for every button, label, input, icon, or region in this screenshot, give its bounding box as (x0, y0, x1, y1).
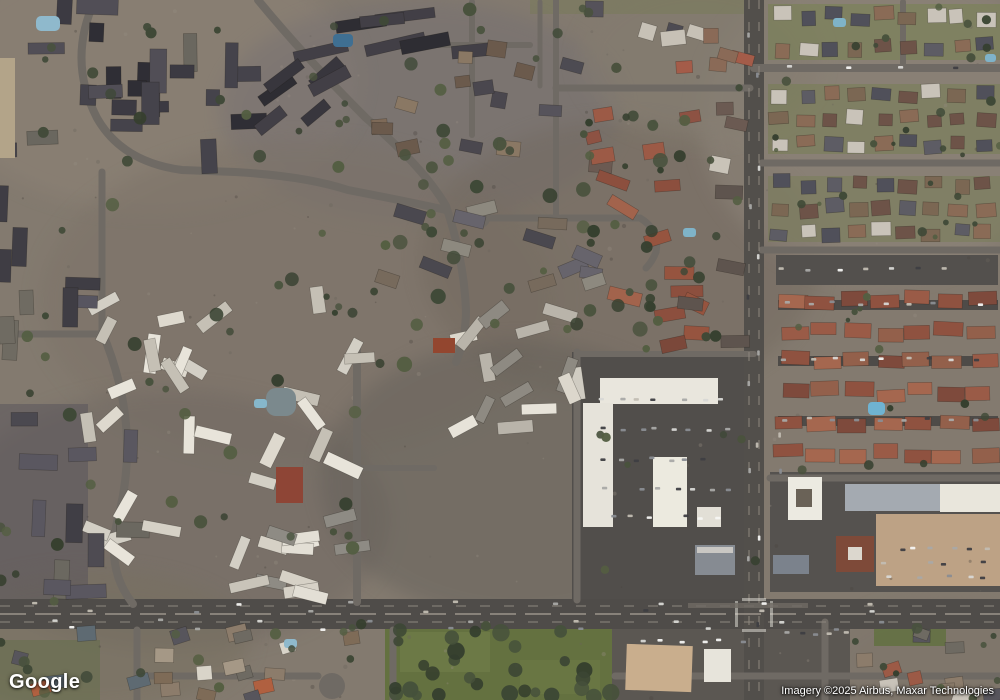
pool-northwest (36, 16, 60, 31)
commercial-bldg-mid (653, 457, 687, 527)
district-east-residential-2 (768, 83, 997, 154)
satellite-imagery (0, 0, 1000, 700)
corner-white-trim (697, 547, 733, 553)
pool-condo (868, 402, 885, 415)
pond-midleft (266, 388, 296, 416)
pool-east-2 (985, 54, 996, 62)
tennis-court-west (276, 467, 303, 503)
pool-midleft (254, 399, 267, 408)
imagery-attribution: Imagery ©2025 Airbus, Maxar Technologies (781, 685, 994, 697)
stripmall-white (940, 484, 1000, 512)
crosswalk-north (742, 598, 766, 601)
commercial-bldg-west (583, 403, 613, 527)
tennis-court-center (433, 338, 455, 353)
beige-building-strip (0, 58, 15, 158)
pool-center-east (683, 228, 696, 237)
pool-east-1 (833, 18, 846, 27)
turn-lane (688, 603, 808, 608)
commercial-bldg-top (600, 378, 718, 404)
pool-dark-north (333, 34, 353, 47)
crosswalk-south (742, 629, 766, 632)
south-white-building (704, 649, 731, 682)
south-tan-building (625, 644, 693, 692)
satellite-map-viewport[interactable]: Google Imagery ©2025 Airbus, Maxar Techn… (0, 0, 1000, 700)
brown-square-inner (848, 547, 862, 560)
district-east-residential-3 (769, 173, 996, 242)
courtyard-inner (796, 489, 812, 507)
stripmall-gray (845, 484, 940, 511)
bluegray-building (773, 555, 809, 574)
google-logo[interactable]: Google (9, 671, 80, 694)
